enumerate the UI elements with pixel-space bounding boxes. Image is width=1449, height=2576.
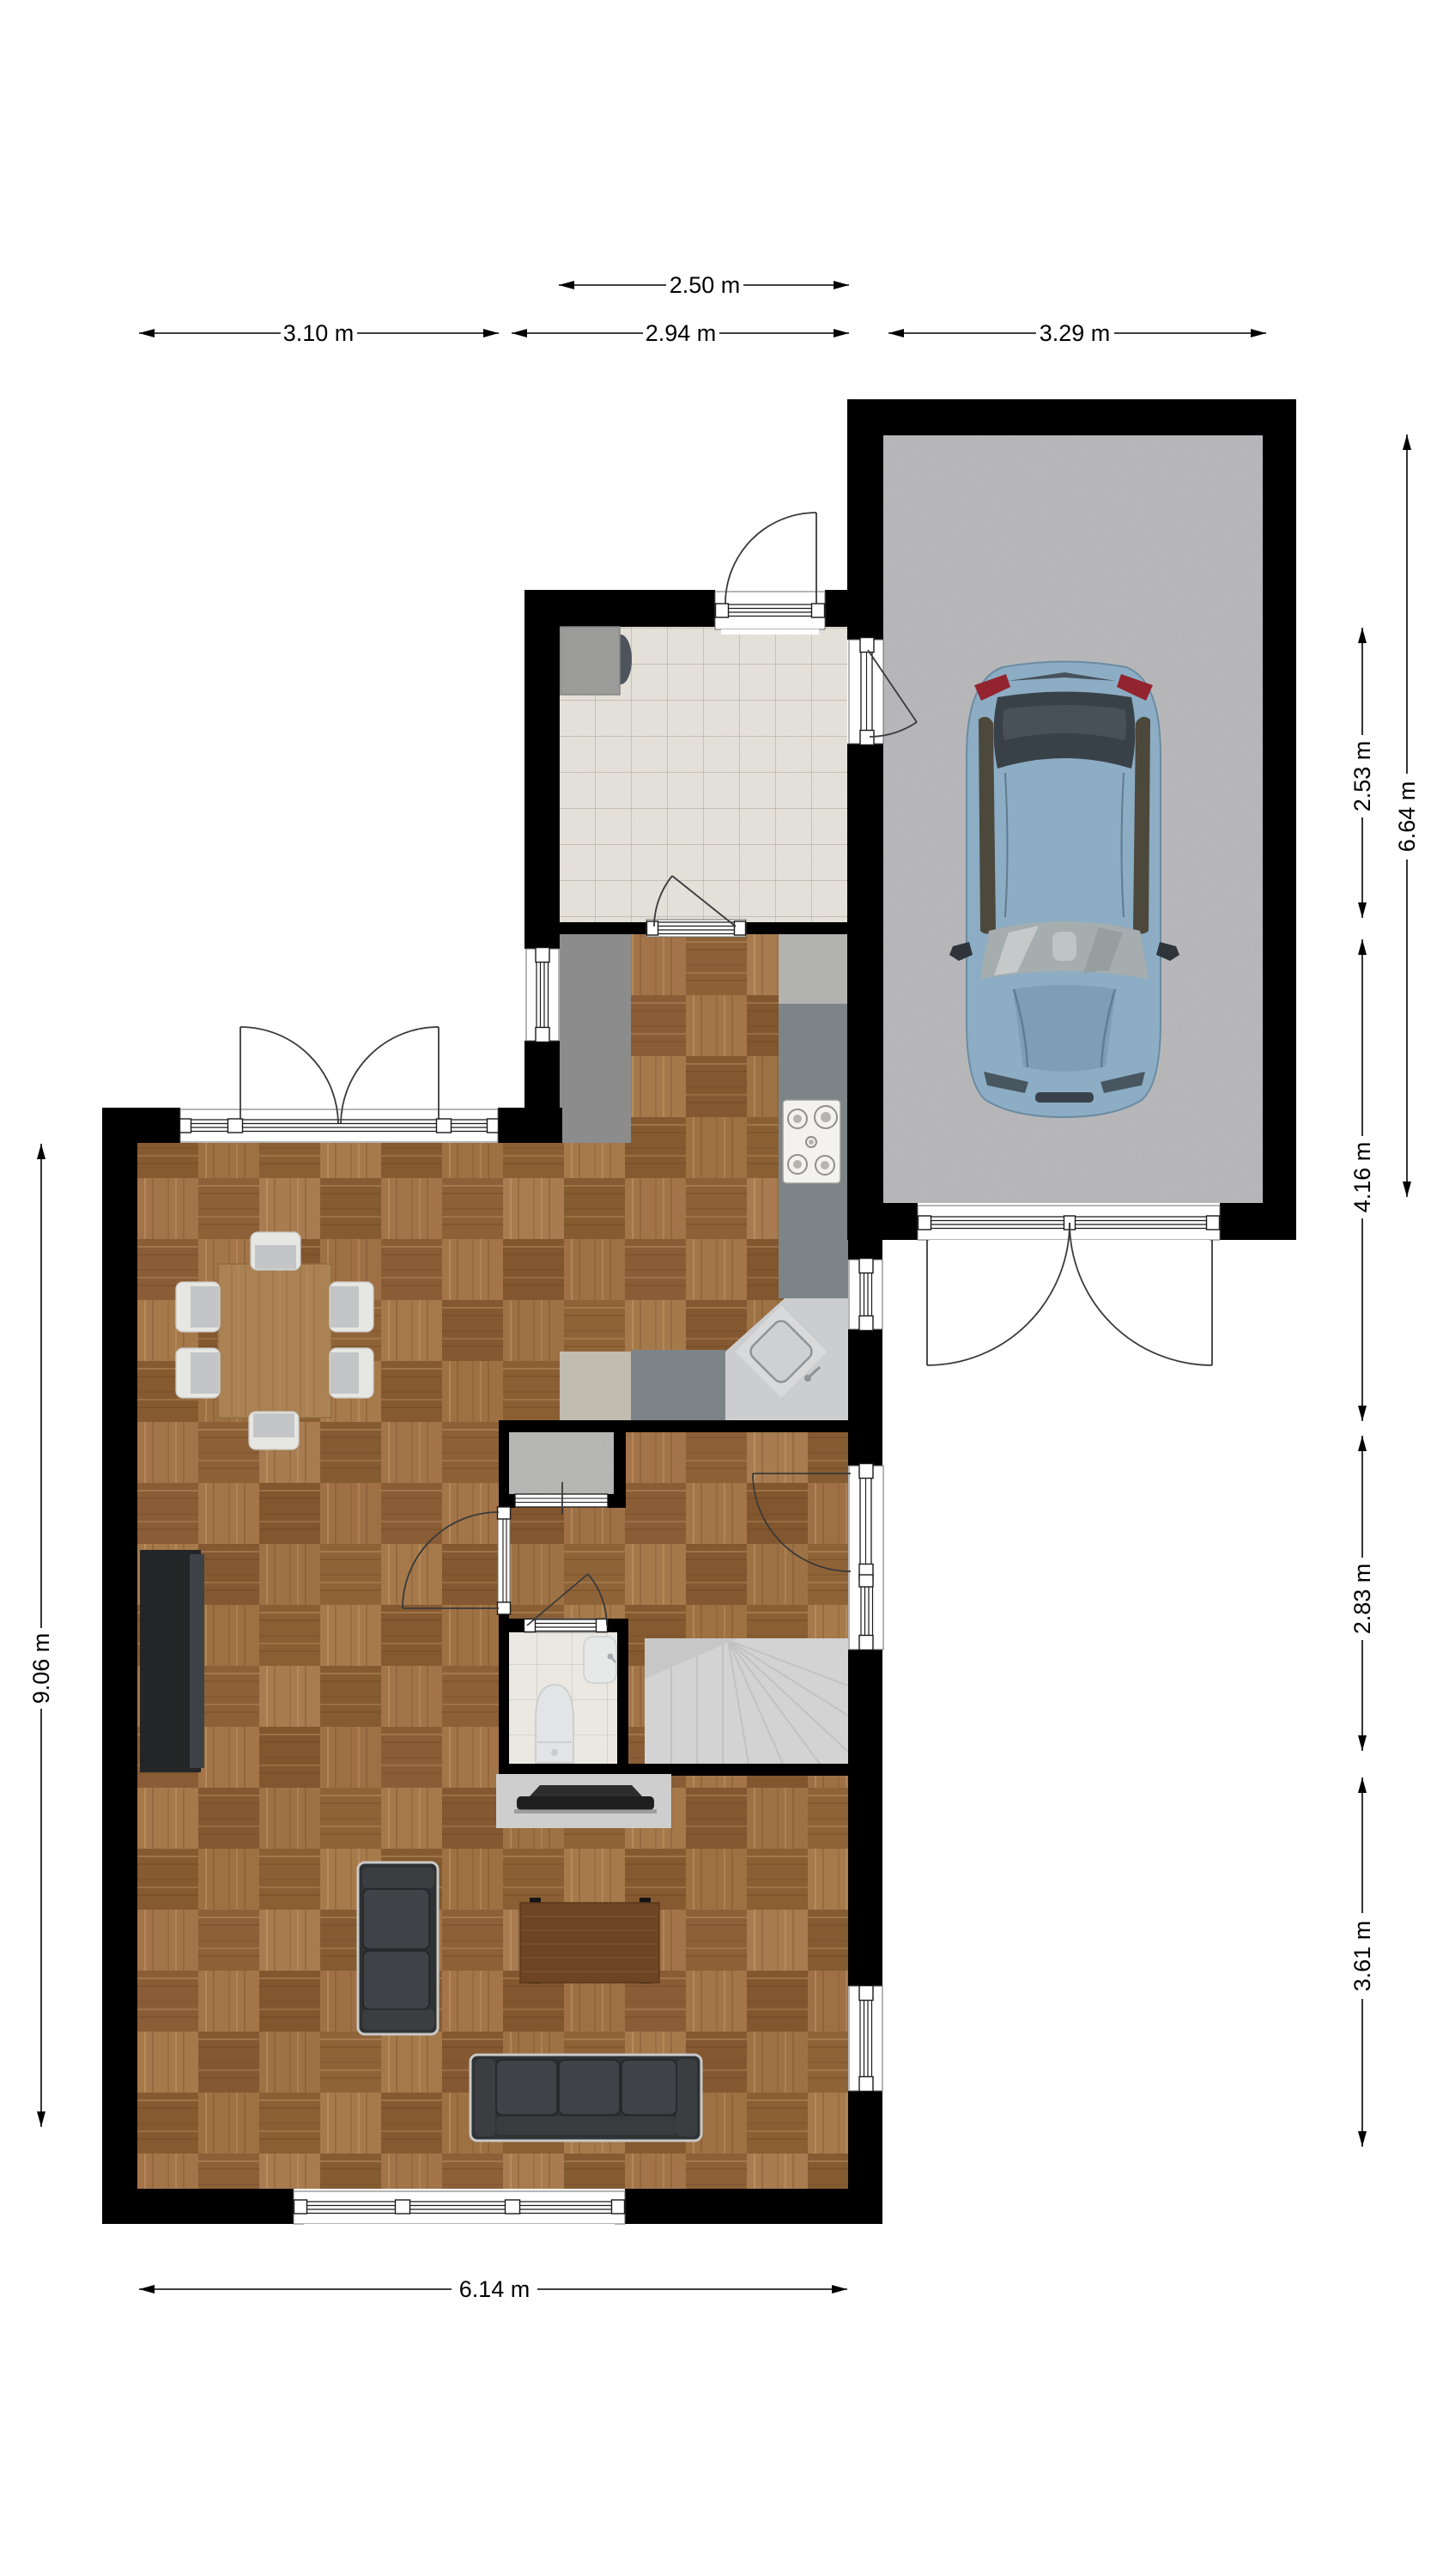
svg-text:9.06 m: 9.06 m [28, 1633, 54, 1704]
svg-text:2.83 m: 2.83 m [1349, 1564, 1375, 1635]
svg-text:3.61 m: 3.61 m [1349, 1921, 1375, 1992]
svg-text:3.29 m: 3.29 m [1040, 320, 1111, 346]
svg-text:2.94 m: 2.94 m [646, 320, 717, 346]
svg-text:2.53 m: 2.53 m [1349, 741, 1375, 812]
svg-text:6.64 m: 6.64 m [1394, 781, 1420, 853]
svg-text:4.16 m: 4.16 m [1349, 1142, 1375, 1213]
svg-text:2.50 m: 2.50 m [670, 272, 741, 298]
svg-text:6.14 m: 6.14 m [459, 2276, 530, 2302]
svg-text:3.10 m: 3.10 m [283, 320, 355, 346]
